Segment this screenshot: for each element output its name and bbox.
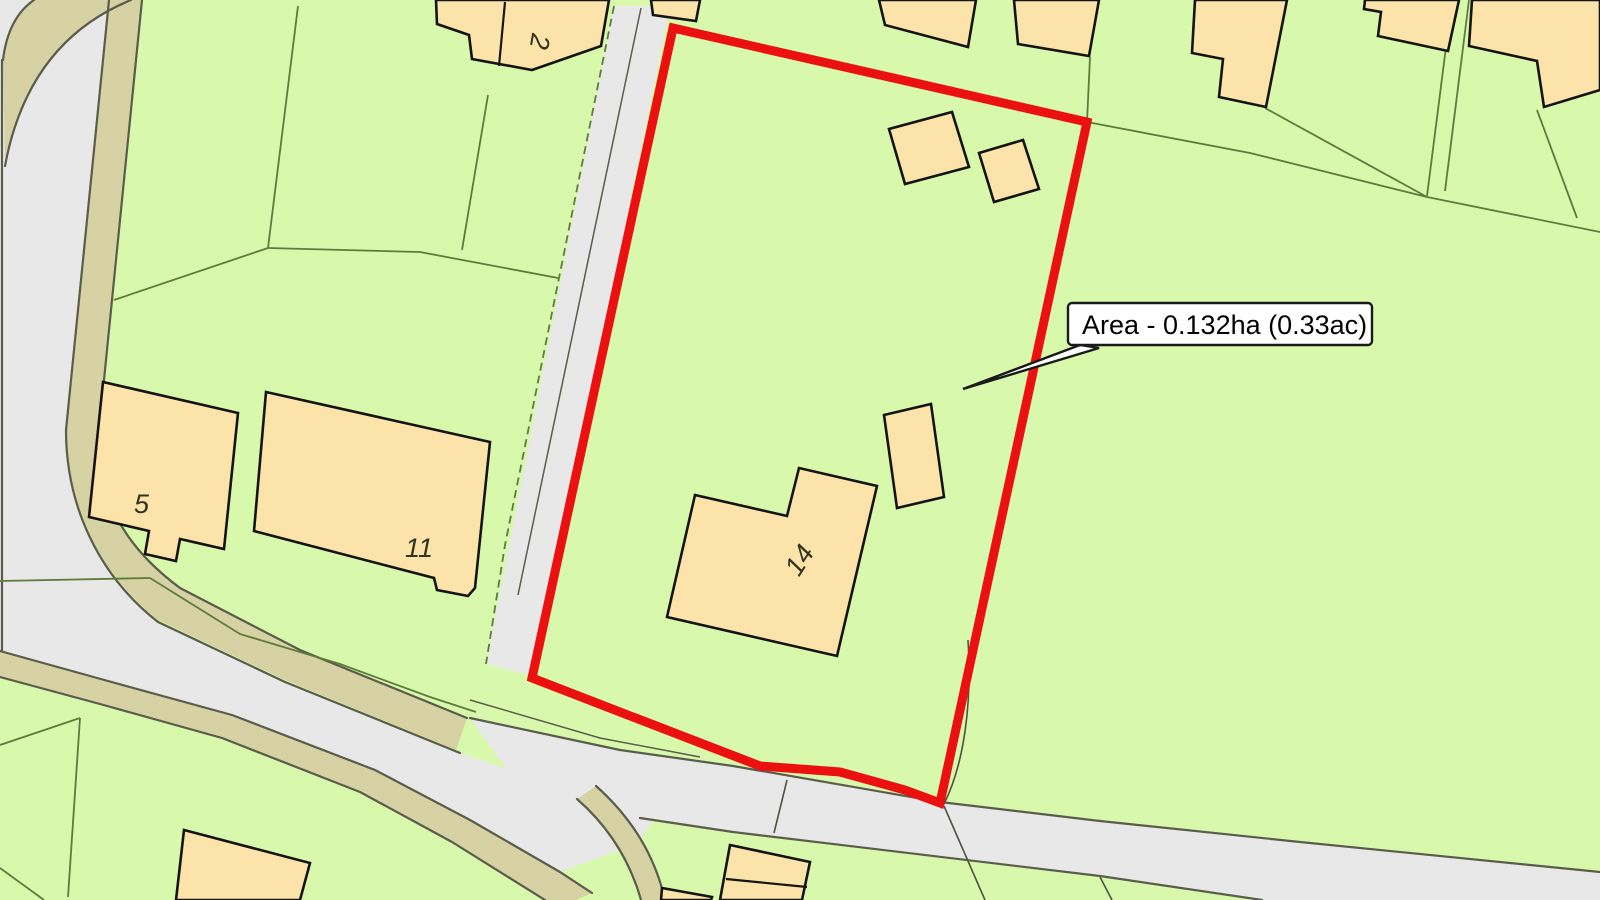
- house-number-5: 5: [134, 489, 150, 519]
- site-plan-canvas: Area - 0.132ha (0.33ac) 5 11 14 2: [0, 0, 1600, 900]
- house-number-11: 11: [405, 533, 433, 563]
- area-callout-text: Area - 0.132ha (0.33ac): [1082, 310, 1367, 340]
- site-plan-map[interactable]: Area - 0.132ha (0.33ac) 5 11 14 2: [0, 0, 1600, 900]
